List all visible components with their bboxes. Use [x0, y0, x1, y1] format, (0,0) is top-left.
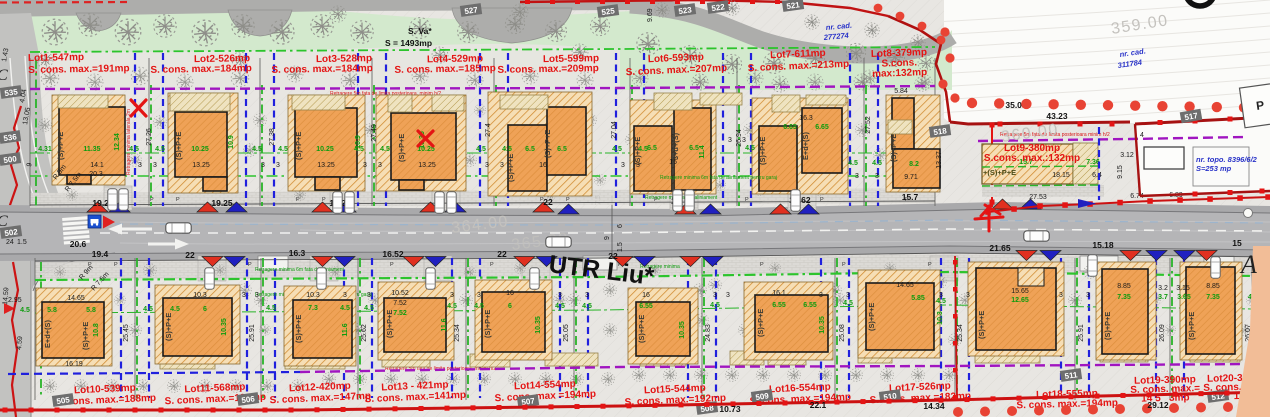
- svg-text:4.5: 4.5: [170, 306, 180, 313]
- svg-text:5.85: 5.85: [911, 295, 925, 302]
- svg-text:(S)+P+E: (S)+P+E: [543, 130, 552, 158]
- svg-text:16: 16: [642, 292, 650, 299]
- svg-text:25.08: 25.08: [839, 324, 846, 342]
- svg-text:nr. topo. 8396/6/2: nr. topo. 8396/6/2: [1196, 155, 1258, 164]
- svg-text:20.3: 20.3: [89, 171, 103, 178]
- svg-text:P: P: [490, 262, 494, 268]
- svg-text:3: 3: [875, 173, 879, 180]
- svg-text:(S)+P+E: (S)+P+E: [397, 134, 406, 162]
- svg-text:5.84: 5.84: [894, 88, 908, 95]
- svg-text:8.85: 8.85: [1206, 283, 1220, 290]
- svg-text:6.5: 6.5: [689, 145, 699, 152]
- svg-text:Retragere minima 6m fata de al: Retragere minima 6m fata de aliniament p…: [660, 175, 777, 181]
- svg-text:4.5: 4.5: [848, 160, 858, 167]
- svg-text:11.35: 11.35: [83, 146, 100, 153]
- svg-text:4.59: 4.59: [16, 336, 24, 350]
- svg-text:16.52: 16.52: [382, 249, 404, 259]
- svg-text:18.15: 18.15: [1052, 172, 1070, 179]
- svg-text:511: 511: [1064, 370, 1079, 381]
- svg-text:3: 3: [367, 292, 371, 299]
- svg-text:10.35: 10.35: [535, 316, 542, 334]
- svg-text:(S)+P+E: (S)+P+E: [637, 315, 646, 343]
- svg-text:3: 3: [477, 292, 481, 299]
- svg-text:527: 527: [464, 5, 479, 16]
- svg-text:S. cons. max.=184mp: S. cons. max.=184mp: [150, 63, 252, 76]
- svg-text:6: 6: [203, 306, 207, 313]
- svg-text:S.cons. max.:132mp: S.cons. max.:132mp: [984, 153, 1080, 164]
- svg-text:500: 500: [3, 154, 18, 165]
- svg-text:5.8: 5.8: [86, 307, 96, 314]
- svg-text:10.73: 10.73: [719, 404, 741, 414]
- svg-text:P: P: [176, 197, 180, 203]
- svg-text:4.5: 4.5: [278, 146, 288, 153]
- svg-text:4.5: 4.5: [582, 303, 592, 310]
- svg-text:4.5: 4.5: [502, 146, 512, 153]
- svg-text:3: 3: [819, 292, 823, 299]
- svg-text:S. cons. max.=209mp: S. cons. max.=209mp: [497, 63, 599, 76]
- svg-text:3: 3: [585, 292, 589, 299]
- svg-text:3: 3: [1086, 292, 1090, 299]
- svg-text:7.35: 7.35: [1206, 294, 1220, 301]
- svg-text:26.09: 26.09: [1159, 324, 1166, 342]
- svg-text:3.15: 3.15: [1176, 285, 1190, 292]
- svg-text:4.5: 4.5: [745, 145, 755, 152]
- svg-text:E+d+(S): E+d+(S): [43, 320, 52, 348]
- svg-text:Retragere minima 6m fata de al: Retragere minima 6m fata de aliniament: [255, 267, 345, 273]
- svg-text:3: 3: [242, 292, 246, 299]
- svg-text:16.19: 16.19: [65, 361, 83, 368]
- svg-text:16.3: 16.3: [799, 115, 813, 122]
- svg-text:10.3: 10.3: [306, 292, 320, 299]
- svg-text:20.6: 20.6: [70, 239, 87, 249]
- svg-text:Retragere minima laterala 2m: Retragere minima laterala 2m: [126, 109, 132, 175]
- svg-text:4.5: 4.5: [380, 146, 390, 153]
- svg-text:4.5: 4.5: [155, 146, 165, 153]
- svg-text:3: 3: [343, 292, 347, 299]
- svg-text:4.5: 4.5: [843, 300, 853, 307]
- svg-text:10.8: 10.8: [93, 323, 100, 337]
- svg-text:13.37: 13.37: [936, 151, 943, 169]
- svg-text:4.5: 4.5: [447, 303, 457, 310]
- svg-text:3: 3: [485, 162, 489, 169]
- svg-text:15.65: 15.65: [1011, 288, 1029, 295]
- svg-text:3: 3: [558, 292, 562, 299]
- svg-text:3: 3: [261, 162, 265, 169]
- svg-text:(S)+P+E: (S)+P+E: [889, 134, 898, 162]
- svg-text:4.5: 4.5: [555, 303, 565, 310]
- svg-text:4.31: 4.31: [38, 146, 52, 153]
- svg-text:505: 505: [56, 395, 71, 406]
- svg-text:4.5: 4.5: [252, 146, 262, 153]
- svg-text:5.8: 5.8: [47, 307, 57, 314]
- svg-text:(S)+P+E: (S)+P+E: [174, 132, 183, 160]
- svg-text:518: 518: [933, 126, 948, 137]
- svg-text:3: 3: [276, 162, 280, 169]
- svg-text:9.15: 9.15: [1117, 165, 1124, 179]
- svg-text:25.91: 25.91: [1078, 324, 1085, 342]
- svg-text:14.65: 14.65: [67, 295, 85, 302]
- svg-text:6: 6: [508, 303, 512, 310]
- svg-text:8.85: 8.85: [1117, 283, 1131, 290]
- svg-text:P: P: [248, 262, 252, 268]
- svg-text:522: 522: [711, 2, 726, 13]
- svg-text:4.5: 4.5: [872, 160, 882, 167]
- svg-text:25.45: 25.45: [123, 324, 130, 342]
- svg-text:7.3: 7.3: [308, 305, 318, 312]
- svg-text:(S)+P+E: (S)+P+E: [294, 132, 303, 160]
- svg-text:3: 3: [966, 292, 970, 299]
- svg-text:9.69: 9.69: [647, 8, 654, 22]
- svg-text:max:132mp: max:132mp: [872, 67, 927, 80]
- svg-text:19.4: 19.4: [92, 249, 109, 259]
- svg-text:P: P: [820, 197, 824, 203]
- svg-text:7.36: 7.36: [1086, 159, 1100, 166]
- svg-text:3: 3: [363, 162, 367, 169]
- svg-text:P: P: [842, 262, 846, 268]
- svg-text:12.65: 12.65: [1011, 297, 1029, 304]
- svg-text:27.26: 27.26: [146, 128, 153, 146]
- svg-text:(S)+P+E: (S)+P+E: [506, 154, 515, 182]
- svg-text:6.65: 6.65: [815, 124, 829, 131]
- svg-text:3: 3: [726, 292, 730, 299]
- svg-text:25.34: 25.34: [454, 324, 461, 342]
- svg-text:(S)+P+E: (S)+P+E: [1187, 312, 1196, 340]
- svg-text:S=253 mp: S=253 mp: [1196, 164, 1232, 173]
- svg-text:10.35: 10.35: [819, 316, 826, 334]
- svg-text:3.2: 3.2: [1158, 285, 1168, 292]
- svg-text:3: 3: [713, 292, 717, 299]
- svg-text:4: 4: [1140, 132, 1144, 139]
- svg-text:9: 9: [604, 236, 611, 240]
- svg-text:10.35: 10.35: [221, 318, 228, 336]
- svg-text:14.34: 14.34: [923, 401, 945, 411]
- svg-text:24: 24: [6, 239, 14, 246]
- svg-text:3: 3: [621, 162, 625, 169]
- svg-text:4.5: 4.5: [364, 305, 374, 312]
- svg-text:523: 523: [678, 5, 693, 16]
- svg-text:26.94: 26.94: [736, 129, 743, 147]
- svg-text:15.7: 15.7: [902, 192, 919, 202]
- svg-text:P: P: [760, 262, 764, 268]
- svg-text:10.52: 10.52: [391, 290, 409, 297]
- svg-text:10.3: 10.3: [937, 311, 944, 325]
- svg-text:10.35: 10.35: [679, 321, 686, 339]
- svg-text:C: C: [0, 213, 8, 230]
- svg-text:14.65: 14.65: [896, 282, 914, 289]
- svg-text:21.65: 21.65: [989, 243, 1011, 253]
- svg-text:(S)+P+E: (S)+P+E: [867, 303, 876, 331]
- svg-text:7.35: 7.35: [1117, 294, 1131, 301]
- svg-text:3: 3: [450, 292, 454, 299]
- svg-text:10.9: 10.9: [355, 135, 362, 149]
- svg-text:10.9: 10.9: [228, 135, 235, 149]
- svg-text:4.5: 4.5: [143, 306, 153, 313]
- svg-text:25.62: 25.62: [361, 324, 368, 342]
- svg-text:3.12: 3.12: [1120, 152, 1134, 159]
- svg-text:509: 509: [755, 391, 770, 402]
- svg-text:24.83: 24.83: [705, 324, 712, 342]
- svg-text:13.25: 13.25: [317, 162, 335, 169]
- svg-text:4.5: 4.5: [266, 305, 276, 312]
- svg-text:6.4: 6.4: [1092, 172, 1102, 179]
- svg-text:16: 16: [669, 159, 677, 166]
- svg-text:S. cons. max.=191mp: S. cons. max.=191mp: [28, 63, 130, 76]
- svg-text:27.53: 27.53: [1029, 194, 1047, 201]
- svg-text:29.12: 29.12: [1147, 400, 1169, 410]
- svg-text:+(S)+P+E: +(S)+P+E: [983, 168, 1016, 177]
- svg-text:11.6: 11.6: [342, 323, 349, 336]
- svg-text:4.5: 4.5: [340, 305, 350, 312]
- svg-text:22: 22: [497, 249, 507, 259]
- svg-text:4.5: 4.5: [474, 303, 484, 310]
- svg-text:3: 3: [138, 162, 142, 169]
- svg-text:12.34: 12.34: [114, 133, 121, 151]
- svg-text:6.65: 6.65: [783, 124, 797, 131]
- svg-text:25.91: 25.91: [249, 324, 256, 342]
- svg-text:22: 22: [185, 250, 195, 260]
- svg-text:6.5: 6.5: [525, 146, 535, 153]
- svg-text:P: P: [114, 262, 118, 268]
- svg-text:3: 3: [500, 162, 504, 169]
- svg-text:S = 1493mp: S = 1493mp: [385, 38, 432, 48]
- svg-text:(S)+P+E: (S)+P+E: [164, 313, 173, 341]
- svg-text:7.52: 7.52: [393, 300, 407, 307]
- svg-text:6.5: 6.5: [557, 146, 567, 153]
- svg-text:4.5: 4.5: [476, 146, 486, 153]
- svg-text:521: 521: [786, 0, 801, 11]
- svg-text:P: P: [390, 262, 394, 268]
- svg-text:27.38: 27.38: [269, 128, 276, 146]
- svg-text:43.23: 43.23: [1046, 111, 1068, 121]
- svg-text:(S)+P+E: (S)+P+E: [483, 310, 492, 338]
- svg-text:4.5: 4.5: [710, 302, 720, 309]
- svg-text:P: P: [566, 197, 570, 203]
- svg-text:(S)+P+E: (S)+P+E: [758, 137, 767, 165]
- svg-text:E+d+(S): E+d+(S): [801, 132, 810, 160]
- svg-text:22.1: 22.1: [810, 400, 827, 410]
- svg-text:6.5: 6.5: [647, 145, 657, 152]
- svg-text:27.4: 27.4: [485, 123, 492, 137]
- svg-text:11.6: 11.6: [441, 318, 448, 331]
- svg-text:16.3: 16.3: [289, 248, 306, 258]
- svg-text:15: 15: [1232, 238, 1242, 248]
- svg-text:10.25: 10.25: [191, 146, 209, 153]
- svg-text:8.2: 8.2: [909, 161, 919, 168]
- svg-text:27.04: 27.04: [611, 121, 618, 139]
- svg-text:3.7: 3.7: [1158, 294, 1168, 301]
- svg-text:6.55: 6.55: [803, 302, 817, 309]
- svg-text:14.1: 14.1: [90, 162, 104, 169]
- svg-text:22: 22: [543, 197, 553, 207]
- svg-text:3: 3: [378, 162, 382, 169]
- svg-text:(S)+P+E: (S)+P+E: [56, 132, 65, 160]
- svg-text:3: 3: [728, 137, 732, 144]
- svg-text:6.55: 6.55: [639, 303, 653, 310]
- svg-text:3: 3: [1059, 292, 1063, 299]
- svg-text:1.5: 1.5: [617, 242, 624, 252]
- svg-text:19.25: 19.25: [211, 198, 233, 208]
- svg-text:4.5: 4.5: [20, 307, 30, 314]
- svg-text:16: 16: [539, 162, 547, 169]
- svg-text:(S)+P+E: (S)+P+E: [977, 311, 986, 339]
- svg-text:6: 6: [617, 224, 624, 228]
- svg-text:4.5: 4.5: [612, 146, 622, 153]
- svg-text:16.1: 16.1: [772, 290, 786, 297]
- svg-text:15.18: 15.18: [1092, 240, 1114, 250]
- svg-text:A: A: [1239, 250, 1257, 279]
- svg-text:(S)+P+E: (S)+P+E: [294, 315, 303, 343]
- svg-text:(S)+P+E: (S)+P+E: [1103, 312, 1112, 340]
- svg-text:535: 535: [4, 87, 19, 98]
- svg-text:13.25: 13.25: [418, 162, 436, 169]
- svg-text:7.52: 7.52: [393, 310, 407, 317]
- svg-text:1.5: 1.5: [17, 239, 27, 246]
- svg-text:3: 3: [846, 292, 850, 299]
- svg-text:10.3: 10.3: [193, 292, 207, 299]
- svg-text:536: 536: [3, 132, 18, 143]
- svg-text:4.5: 4.5: [936, 298, 946, 305]
- svg-text:27.52: 27.52: [865, 116, 872, 134]
- svg-text:(S)+P+E: (S)+P+E: [756, 309, 765, 337]
- svg-text:3: 3: [636, 162, 640, 169]
- svg-text:3.65: 3.65: [1177, 294, 1191, 301]
- svg-text:10.25: 10.25: [316, 146, 334, 153]
- svg-text:Lot1-547mp: Lot1-547mp: [28, 52, 84, 64]
- svg-text:P: P: [928, 262, 932, 268]
- svg-text:13.25: 13.25: [192, 162, 210, 169]
- svg-text:9.71: 9.71: [904, 174, 918, 181]
- svg-text:C: C: [0, 67, 8, 84]
- svg-text:3: 3: [855, 173, 859, 180]
- svg-text:3: 3: [255, 292, 259, 299]
- svg-text:11.4: 11.4: [699, 145, 706, 158]
- svg-text:3+d+(S): 3+d+(S): [671, 132, 680, 160]
- svg-text:525: 525: [601, 6, 616, 17]
- svg-text:6.55: 6.55: [772, 302, 786, 309]
- svg-text:27.49: 27.49: [371, 124, 378, 142]
- svg-text:2.95: 2.95: [8, 297, 22, 304]
- svg-text:S. cons. max.=185mp: S. cons. max.=185mp: [394, 63, 496, 76]
- svg-text:25.05: 25.05: [563, 324, 570, 342]
- svg-text:3: 3: [153, 162, 157, 169]
- svg-text:16: 16: [506, 290, 514, 297]
- svg-text:506: 506: [241, 394, 256, 405]
- svg-text:25.34: 25.34: [957, 324, 964, 342]
- svg-text:S. Va*: S. Va*: [408, 26, 432, 36]
- svg-text:S. cons. max.=184mp: S. cons. max.=184mp: [271, 63, 373, 76]
- svg-text:(S)+P+E: (S)+P+E: [81, 322, 90, 350]
